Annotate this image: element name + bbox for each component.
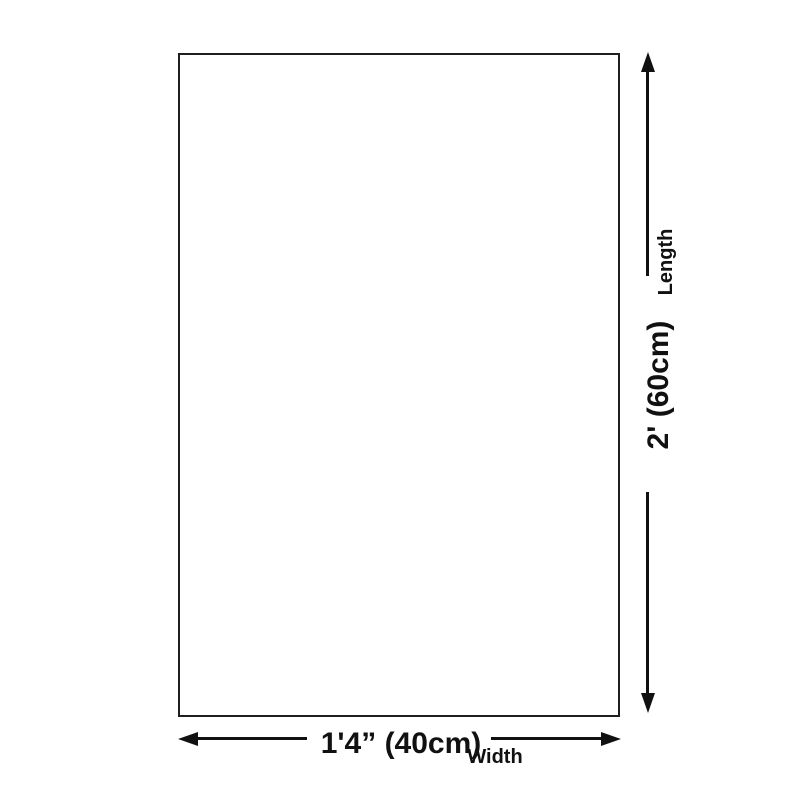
width-arrow-right-icon	[601, 732, 621, 746]
width-arrow-line-left	[197, 737, 307, 740]
width-axis-label: Width	[467, 747, 522, 767]
width-arrow-line-right	[491, 737, 601, 740]
product-outline-rectangle	[178, 53, 620, 717]
size-diagram: Length 2' (60cm) 1'4” (40cm) Width	[0, 0, 800, 800]
length-value: 2' (60cm)	[644, 321, 674, 450]
length-arrow-up-icon	[641, 52, 655, 72]
width-arrow-left-icon	[178, 732, 198, 746]
length-arrow-line-bottom	[646, 492, 649, 693]
length-axis-label: Length	[656, 229, 676, 296]
length-arrow-down-icon	[641, 693, 655, 713]
width-value: 1'4” (40cm)	[321, 729, 482, 759]
length-arrow-line-top	[646, 71, 649, 276]
